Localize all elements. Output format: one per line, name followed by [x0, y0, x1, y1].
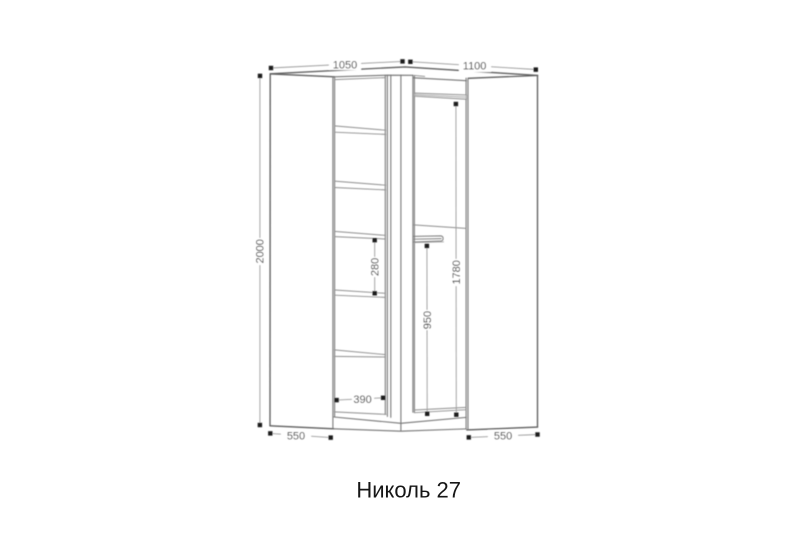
svg-text:950: 950 [422, 311, 434, 329]
svg-text:1780: 1780 [451, 260, 463, 284]
svg-text:280: 280 [370, 258, 382, 276]
svg-text:390: 390 [353, 394, 371, 406]
svg-text:550: 550 [287, 430, 305, 442]
svg-text:Николь 27: Николь 27 [356, 477, 461, 502]
svg-text:1050: 1050 [333, 59, 357, 71]
svg-text:1100: 1100 [463, 61, 487, 73]
svg-text:550: 550 [494, 431, 512, 443]
svg-text:2000: 2000 [255, 239, 267, 263]
